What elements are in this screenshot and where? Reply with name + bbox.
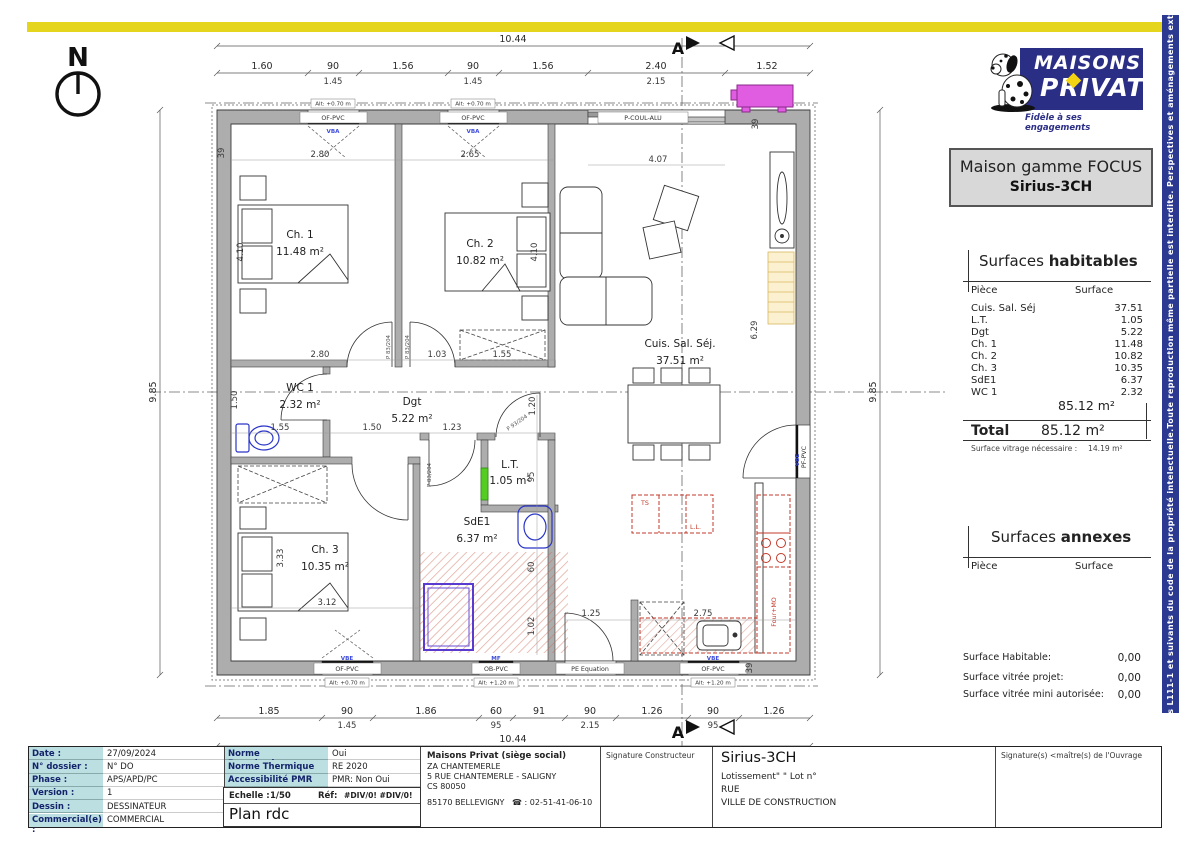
svg-text:1.02: 1.02 (527, 617, 537, 636)
dimension-label: 9.85 (868, 381, 879, 402)
scale-value: 1/50 (270, 791, 291, 801)
model-range: Maison gamme FOCUS (951, 150, 1151, 176)
table-row: Ch. 111.48 (971, 339, 1143, 351)
svg-text:OF-PVC: OF-PVC (461, 115, 485, 122)
project-line: Lotissement" " Lot n° (721, 772, 987, 782)
svg-text:PF-PVC: PF-PVC (801, 445, 808, 468)
surfaces-habitables-table: Surfaces habitables Pièce Surface Cuis. … (963, 248, 1151, 460)
model-box: Maison gamme FOCUS Sirius-3CH (949, 148, 1153, 207)
logo-tagline: Fidèle à ses engagements (1025, 113, 1145, 133)
surfaces-habitables-title: Surfaces habitables (979, 252, 1138, 270)
room-area: 10.82 m² (456, 255, 504, 267)
svg-text:2.80: 2.80 (311, 150, 330, 160)
section-marker-bottom: A (672, 720, 734, 742)
table-row: WC 12.32 (971, 387, 1143, 399)
scale-box: Echelle : 1/50 Réf: #DIV/0! #DIV/0! Plan… (223, 787, 421, 828)
table-row: Cuis. Sal. Séj37.51 (971, 303, 1143, 315)
svg-text:1.56: 1.56 (392, 61, 413, 72)
svg-text:95: 95 (491, 721, 502, 731)
svg-text:3.12: 3.12 (318, 598, 337, 608)
svg-text:2.65: 2.65 (461, 150, 480, 160)
title-block-norms: Norme ParasismiqueOui Norme ThermiqueRE … (225, 747, 421, 827)
company-name: Maisons Privat (siège social) (427, 751, 594, 762)
svg-text:L.L.: L.L. (690, 524, 701, 531)
title-block-project: Sirius-3CH Lotissement" " Lot n° RUE VIL… (713, 747, 996, 827)
signature-owner-cell: Signature(s) <maître(s) de l'Ouvrage (996, 747, 1161, 827)
svg-text:P 83/204: P 83/204 (427, 462, 433, 486)
svg-text:6.29: 6.29 (750, 321, 760, 340)
table-row: Ch. 310.35 (971, 363, 1143, 375)
svg-text:60: 60 (527, 562, 537, 573)
svg-text:1.45: 1.45 (324, 77, 343, 87)
svg-text:1.55: 1.55 (271, 423, 290, 433)
room-name: SdE1 (464, 516, 491, 528)
svg-text:OF-PVC: OF-PVC (701, 666, 725, 673)
svg-text:Alt: +0.70 m: Alt: +0.70 m (329, 681, 365, 687)
surface-summary: Surface Habitable:0,00 Surface vitrée pr… (963, 652, 1141, 701)
column-header-piece: Pièce (971, 561, 997, 572)
company-address-line: ZA CHANTEMERLE (427, 762, 594, 772)
table-row: Dgt5.22 (971, 327, 1143, 339)
room-area: 5.22 m² (391, 413, 432, 425)
room-name: Ch. 2 (466, 238, 493, 250)
svg-text:OF-PVC: OF-PVC (335, 666, 359, 673)
svg-text:Alt: +0.70 m: Alt: +0.70 m (315, 102, 351, 108)
company-logo: MAISONS PRIVAT Fidèle à ses engagements (975, 42, 1155, 124)
svg-text:MF: MF (491, 656, 501, 662)
svg-text:60: 60 (490, 706, 502, 717)
svg-text:39: 39 (751, 119, 761, 130)
svg-text:P-COUL-ALU: P-COUL-ALU (624, 115, 662, 122)
svg-text:VBE: VBE (795, 454, 801, 467)
svg-text:1.52: 1.52 (756, 61, 777, 72)
total-label: Total (971, 423, 1009, 439)
room-name: WC 1 (286, 382, 314, 394)
summary-row: Surface Habitable:0,00 (963, 652, 1141, 664)
title-block-company: Maisons Privat (siège social) ZA CHANTEM… (421, 747, 601, 827)
company-address-line: CS 80050 (427, 782, 594, 792)
svg-text:TS: TS (640, 500, 649, 507)
svg-text:VBE: VBE (707, 656, 720, 662)
info-row: Phase :APS/APD/PC (29, 774, 224, 787)
svg-text:1.03: 1.03 (428, 350, 447, 360)
info-row: N° dossier :N° DO (29, 760, 224, 773)
surfaces-annexes-table: Surfaces annexes Pièce Surface (963, 520, 1151, 575)
plan-name: Plan rdc (229, 805, 289, 823)
svg-text:4.07: 4.07 (649, 155, 668, 165)
svg-text:2.15: 2.15 (581, 721, 600, 731)
summary-row: Surface vitrée projet:0,00 (963, 672, 1141, 684)
column-header-surface: Surface (1075, 561, 1113, 572)
svg-text:2.80: 2.80 (311, 350, 330, 360)
svg-text:1.45: 1.45 (338, 721, 357, 731)
room-name: Dgt (403, 396, 422, 408)
norm-row: Norme ParasismiqueOui (225, 747, 420, 760)
column-header-surface: Surface (1075, 285, 1113, 296)
pac-unit (731, 85, 793, 112)
north-label: N (67, 43, 89, 73)
room-area: 2.32 m² (279, 399, 320, 411)
svg-text:Alt: +1.20 m: Alt: +1.20 m (478, 681, 514, 687)
info-row: Dessin :DESSINATEUR (29, 800, 224, 813)
svg-text:1.56: 1.56 (532, 61, 553, 72)
svg-text:4.10: 4.10 (236, 243, 246, 262)
svg-text:95: 95 (708, 721, 719, 731)
svg-text:A: A (672, 39, 685, 58)
svg-text:P 83/204: P 83/204 (386, 334, 392, 358)
room-name: L.T. (501, 459, 519, 471)
north-indicator: N (57, 43, 99, 115)
column-header-piece: Pièce (971, 285, 997, 296)
subtotal: 85.12 m² (1058, 398, 1115, 413)
dimension-label: 10.44 (499, 734, 526, 745)
svg-text:P 93/204: P 93/204 (506, 414, 530, 433)
svg-text:OF-PVC: OF-PVC (321, 115, 345, 122)
floor-plan-page: N (0, 0, 1200, 848)
table-row: Ch. 210.82 (971, 351, 1143, 363)
svg-text:90: 90 (584, 706, 596, 717)
room-area: 11.48 m² (276, 246, 324, 258)
svg-text:1.85: 1.85 (258, 706, 279, 717)
svg-text:1.20: 1.20 (528, 397, 538, 416)
surfaces-annexes-title: Surfaces annexes (991, 528, 1131, 546)
project-name: Sirius-3CH (721, 750, 987, 766)
info-row: Version :1 (29, 787, 224, 800)
svg-text:OB-PVC: OB-PVC (484, 666, 509, 673)
svg-text:VBE: VBE (341, 656, 354, 662)
signature-constructor-cell: Signature Constructeur (601, 747, 713, 827)
svg-text:90: 90 (707, 706, 719, 717)
table-row: L.T.1.05 (971, 315, 1143, 327)
ref-value: #DIV/0! #DIV/0! (344, 791, 412, 800)
vitrage-note-label: Surface vitrage nécessaire : (971, 444, 1077, 453)
svg-text:1.26: 1.26 (641, 706, 662, 717)
scale-label: Echelle : (229, 791, 270, 801)
company-phone: ☎ : 02-51-41-06-10 (512, 798, 592, 807)
svg-text:90: 90 (327, 61, 339, 72)
svg-text:90: 90 (467, 61, 479, 72)
title-block: Date :27/09/2024 N° dossier :N° DO Phase… (28, 746, 1162, 828)
total-value: 85.12 m² (1041, 423, 1105, 439)
svg-text:Alt: +0.70 m: Alt: +0.70 m (455, 102, 491, 108)
svg-text:1.50: 1.50 (363, 423, 382, 433)
project-line: VILLE DE CONSTRUCTION (721, 798, 987, 808)
svg-text:1.26: 1.26 (763, 706, 784, 717)
signature-owner-label: Signature(s) <maître(s) de l'Ouvrage (996, 747, 1161, 764)
info-row: Date :27/09/2024 (29, 747, 224, 760)
room-name: Ch. 3 (311, 544, 338, 556)
svg-text:1.86: 1.86 (415, 706, 436, 717)
svg-text:1.55: 1.55 (493, 350, 512, 360)
copyright-text: Plans protégés par les articles L111-1 e… (1166, 0, 1175, 848)
company-address-line: 5 RUE CHANTEMERLE - SALIGNY (427, 772, 594, 782)
signature-constructor-label: Signature Constructeur (601, 747, 712, 764)
norm-row: Accessibilité PMRPMR: Non Oui (225, 774, 420, 787)
water-heater (481, 468, 488, 500)
dimension-label: 10.44 (499, 34, 526, 45)
svg-text:P 83/204: P 83/204 (405, 334, 411, 358)
svg-text:PE Equation: PE Equation (571, 666, 609, 673)
svg-text:VBA: VBA (327, 129, 341, 135)
room-area: 10.35 m² (301, 561, 349, 573)
svg-text:90: 90 (341, 706, 353, 717)
svg-text:1.60: 1.60 (251, 61, 272, 72)
svg-text:2.75: 2.75 (694, 609, 713, 619)
svg-text:2.15: 2.15 (647, 77, 666, 87)
table-row: SdE16.37 (971, 375, 1143, 387)
svg-text:2.40: 2.40 (645, 61, 666, 72)
project-line: RUE (721, 785, 987, 795)
svg-text:1.45: 1.45 (464, 77, 483, 87)
dalmatian-dog-icon (983, 44, 1043, 114)
top-border-strip (27, 22, 1163, 32)
room-name: Cuis. Sal. Séj. (644, 338, 715, 350)
company-city: 85170 BELLEVIGNY (427, 798, 504, 807)
svg-text:91: 91 (533, 706, 545, 717)
room-name: Ch. 1 (286, 229, 313, 241)
vitrage-note-value: 14.19 m² (1088, 444, 1123, 453)
svg-text:95: 95 (527, 472, 537, 483)
room-area: 1.05 m² (489, 475, 530, 487)
room-area: 6.37 m² (456, 533, 497, 545)
svg-text:3.33: 3.33 (276, 549, 286, 568)
ref-label: Réf: (318, 791, 337, 801)
svg-text:VBA: VBA (467, 129, 481, 135)
norm-row: Norme ThermiqueRE 2020 (225, 760, 420, 773)
svg-text:1.50: 1.50 (230, 391, 240, 410)
svg-text:39: 39 (217, 148, 227, 159)
section-marker-top: A (672, 36, 734, 58)
svg-text:1.25: 1.25 (582, 609, 601, 619)
title-block-info: Date :27/09/2024 N° dossier :N° DO Phase… (29, 747, 225, 827)
summary-row: Surface vitrée mini autorisée:0,00 (963, 689, 1141, 701)
info-row: Commercial(e) :COMMERCIAL (29, 814, 224, 827)
room-area: 37.51 m² (656, 355, 704, 367)
svg-text:A: A (672, 723, 685, 742)
dimension-label: 9.85 (148, 381, 159, 402)
svg-text:Alt: +1.20 m: Alt: +1.20 m (695, 681, 731, 687)
model-name: Sirius-3CH (951, 176, 1151, 195)
copyright-strip: Plans protégés par les articles L111-1 e… (1162, 15, 1179, 713)
svg-text:4.10: 4.10 (530, 243, 540, 262)
svg-text:39: 39 (745, 663, 755, 674)
svg-text:1.23: 1.23 (443, 423, 462, 433)
svg-text:Four+MO: Four+MO (771, 597, 778, 627)
